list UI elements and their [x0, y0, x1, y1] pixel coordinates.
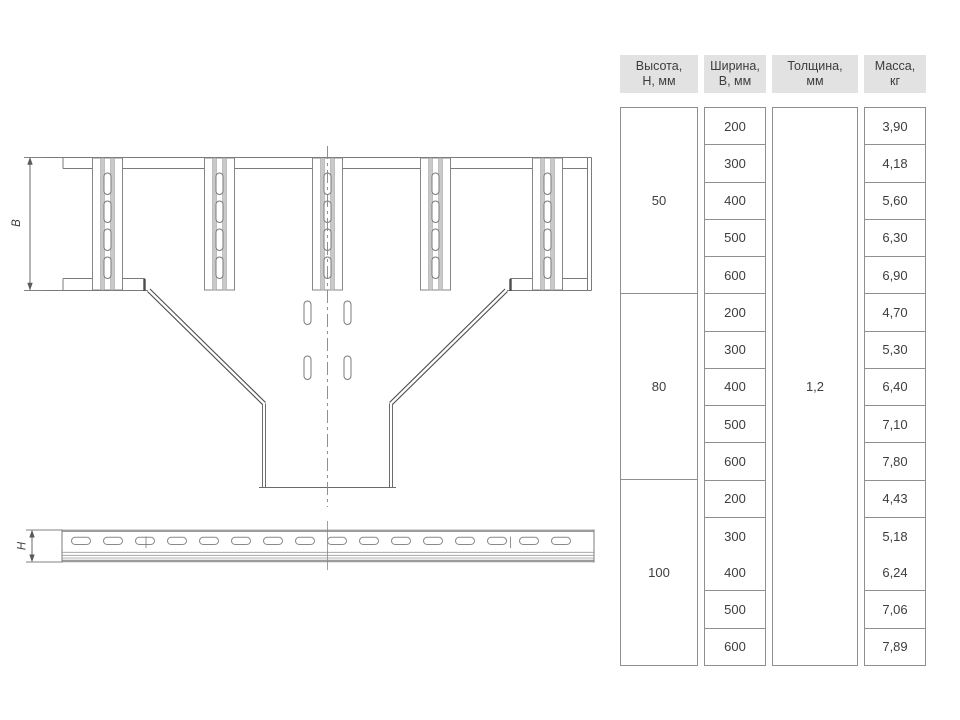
table-cell-mass: 6,30	[865, 219, 925, 256]
header-line: Масса,	[875, 59, 915, 74]
column-height: Высота, Н, мм 50 80 100	[620, 55, 698, 666]
table-cell-width: 600	[705, 628, 765, 665]
technical-drawing: В	[0, 0, 620, 720]
table-cell-width: 300	[705, 331, 765, 368]
rung	[533, 158, 563, 290]
header-line: Н, мм	[642, 74, 675, 89]
thickness-column-body: 1,2	[772, 107, 858, 666]
table-cell-mass: 7,80	[865, 442, 925, 479]
table-cell-width: 500	[705, 405, 765, 442]
table-cell-width: 200	[705, 108, 765, 144]
table-cell-width: 300	[705, 517, 765, 554]
header-line: Толщина,	[787, 59, 842, 74]
table-cell-width: 300	[705, 144, 765, 181]
height-column-body: 50 80 100	[620, 107, 698, 666]
mass-column-body: 3,90 4,18 5,60 6,30 6,90 4,70 5,30 6,40 …	[864, 107, 926, 666]
table-cell-width: 400	[705, 554, 765, 590]
table-cell-width: 500	[705, 219, 765, 256]
column-width: Ширина, В, мм 200 300 400 500 600 200 30…	[704, 55, 766, 666]
table-cell-mass: 7,06	[865, 590, 925, 627]
table-cell-thickness: 1,2	[773, 108, 857, 665]
table-cell-mass: 5,18	[865, 517, 925, 554]
width-dim-label: В	[11, 219, 23, 227]
column-header-thickness: Толщина, мм	[772, 55, 858, 93]
table-cell-width: 400	[705, 182, 765, 219]
table-cell-width: 200	[705, 480, 765, 517]
table-cell-mass: 4,18	[865, 144, 925, 181]
column-header-height: Высота, Н, мм	[620, 55, 698, 93]
table-cell-mass: 4,43	[865, 480, 925, 517]
header-line: кг	[890, 74, 900, 89]
table-cell-width: 400	[705, 368, 765, 405]
rung	[93, 158, 123, 290]
dimension-width	[24, 157, 56, 291]
page: В	[0, 0, 960, 720]
rung	[205, 158, 235, 290]
column-thickness: Толщина, мм 1,2	[772, 55, 858, 666]
table-cell-mass: 5,30	[865, 331, 925, 368]
table-cell-mass: 3,90	[865, 108, 925, 144]
table-cell-mass: 7,10	[865, 405, 925, 442]
rung	[421, 158, 451, 290]
column-header-mass: Масса, кг	[864, 55, 926, 93]
table-cell-width: 500	[705, 590, 765, 627]
column-mass: Масса, кг 3,90 4,18 5,60 6,30 6,90 4,70 …	[864, 55, 926, 666]
table-cell-mass: 6,90	[865, 256, 925, 293]
table-cell-mass: 5,60	[865, 182, 925, 219]
table-cell-width: 200	[705, 293, 765, 330]
side-view	[62, 521, 594, 570]
header-line: В, мм	[719, 74, 751, 89]
height-dim-label: Н	[17, 541, 29, 550]
header-line: Ширина,	[710, 59, 760, 74]
table-cell-mass: 4,70	[865, 293, 925, 330]
spec-table: Высота, Н, мм 50 80 100 Ширина, В, мм 20…	[620, 55, 926, 666]
column-header-width: Ширина, В, мм	[704, 55, 766, 93]
table-cell-mass: 7,89	[865, 628, 925, 665]
table-cell-mass: 6,40	[865, 368, 925, 405]
dimension-height	[26, 530, 62, 562]
branch-funnel	[145, 279, 511, 488]
table-cell-height: 80	[621, 293, 697, 479]
header-line: мм	[806, 74, 823, 89]
table-cell-width: 600	[705, 256, 765, 293]
table-cell-height: 50	[621, 108, 697, 293]
table-cell-width: 600	[705, 442, 765, 479]
table-cell-height: 100	[621, 479, 697, 665]
header-line: Высота,	[636, 59, 682, 74]
width-column-body: 200 300 400 500 600 200 300 400 500 600 …	[704, 107, 766, 666]
table-cell-mass: 6,24	[865, 554, 925, 590]
